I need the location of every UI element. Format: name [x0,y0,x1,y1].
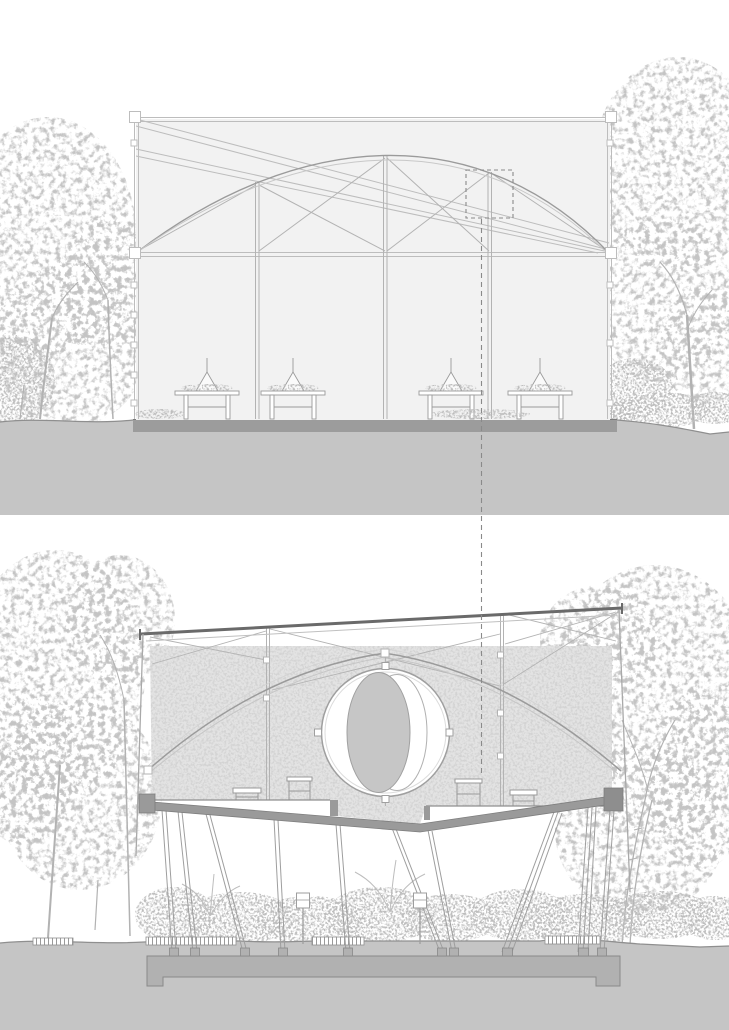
opening-disc [347,673,410,793]
garden-undergrowth [135,860,570,944]
lower-section [0,550,729,1030]
floor-scribble [135,409,185,419]
table-top [175,391,239,395]
building-upper [130,112,617,421]
building-lower [136,603,630,892]
upper-section [0,57,729,515]
tree-sketch-lower-left [0,550,175,938]
lamp-head [297,893,310,908]
slab-end-cap-right [604,788,623,811]
lamp-head [414,893,427,908]
building-floor-strip [133,419,617,432]
floor-scribble [430,409,530,419]
table-leg [226,395,230,419]
ground-fill [0,420,729,515]
table-leg [184,395,188,419]
ground-upper [0,419,729,515]
architectural-section-drawing [0,0,729,1030]
slab-end-cap-left [139,794,155,813]
ground-lower [0,939,729,1030]
floor-step [330,800,338,816]
floor-step [424,806,430,820]
drawing-canvas [0,0,729,1030]
